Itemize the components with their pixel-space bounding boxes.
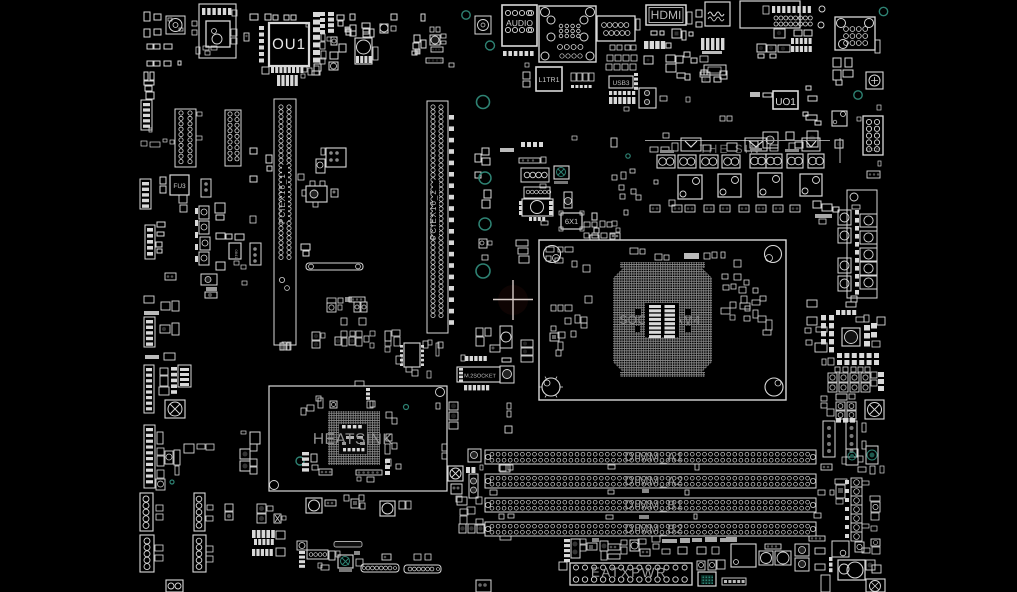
svg-text:AUDIO: AUDIO xyxy=(506,18,533,28)
svg-text:USB3: USB3 xyxy=(612,80,629,87)
svg-text:HDMI: HDMI xyxy=(651,8,682,22)
svg-text:DIMM_A2: DIMM_A2 xyxy=(624,474,683,488)
svg-text:0841: 0841 xyxy=(234,250,239,260)
svg-text:ATX12V: ATX12V xyxy=(866,147,881,152)
svg-text:DIMM_B1: DIMM_B1 xyxy=(624,498,683,512)
svg-text:L1TR1: L1TR1 xyxy=(538,77,559,84)
svg-text:HEATSINK: HEATSINK xyxy=(313,431,394,448)
svg-text:6X1: 6X1 xyxy=(565,217,578,226)
svg-text:FU3: FU3 xyxy=(173,183,186,190)
svg-text:PCIEX16_2: PCIEX16_2 xyxy=(429,189,438,240)
svg-text:UO1: UO1 xyxy=(775,97,796,108)
svg-text:M.2SOCKET: M.2SOCKET xyxy=(464,373,496,379)
svg-text:DIMM_B2: DIMM_B2 xyxy=(624,522,683,536)
svg-text:EATXPWR: EATXPWR xyxy=(591,565,667,580)
svg-text:DIMM_A1: DIMM_A1 xyxy=(624,450,683,464)
svg-text:OU1: OU1 xyxy=(272,36,306,53)
svg-text:PCIEX16_1: PCIEX16_1 xyxy=(278,173,287,224)
